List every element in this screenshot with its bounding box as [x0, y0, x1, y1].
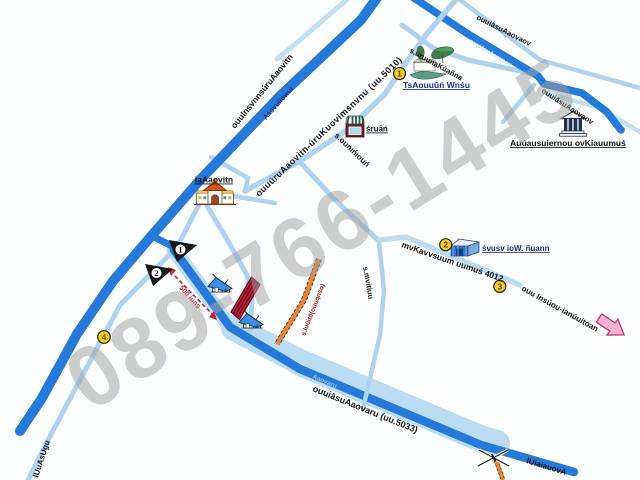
svg-text:2: 2 — [154, 268, 158, 278]
svg-text:1: 1 — [178, 245, 182, 255]
svg-text:3: 3 — [498, 282, 503, 291]
svg-text:śvusv ioW. ñuann: śvusv ioW. ñuann — [482, 244, 550, 253]
svg-text:2: 2 — [443, 241, 448, 250]
svg-text:iaAaovitn: iaAaovitn — [195, 175, 233, 185]
svg-text:1: 1 — [397, 70, 402, 79]
svg-text:śruāń: śruāń — [366, 125, 388, 134]
